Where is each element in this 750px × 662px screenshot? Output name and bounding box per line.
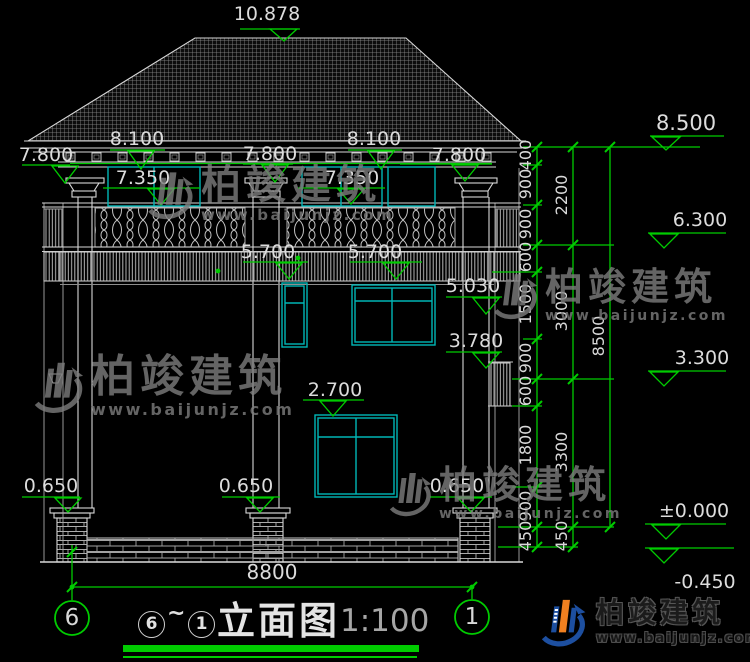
grid-bubble-1: 1	[454, 599, 490, 635]
title-tilde: ~	[167, 603, 185, 625]
roof-hatch	[28, 38, 521, 141]
watermark-logo-icon	[384, 462, 434, 524]
title-scale: 1:100	[340, 606, 429, 637]
level-base-2: 0.650	[212, 477, 280, 496]
dim-overall-width: 8800	[235, 562, 309, 582]
watermark-name: 柏竣建筑	[545, 268, 728, 306]
brand-url: www.baijunjz.com	[596, 632, 750, 645]
level-base-1: 0.650	[17, 477, 85, 496]
mark-neg450: -0.450	[666, 573, 744, 592]
title-name: 立面图	[217, 602, 340, 640]
chain2-2200: 2200	[554, 160, 570, 230]
level-window1f: 2.700	[301, 381, 369, 400]
watermark-top: 柏竣建筑 www.baijunjz.com	[142, 160, 394, 228]
watermark-logo-icon	[28, 350, 86, 422]
level-beam-3: 7.800	[425, 146, 493, 165]
window-2f-top-right	[388, 167, 435, 206]
level-balcony-1: 5.700	[234, 243, 302, 262]
level-beam-1: 7.800	[12, 146, 80, 165]
grid-bubble-6: 6	[54, 600, 90, 636]
mark-6300: 6.300	[661, 211, 739, 230]
level-eave-1: 8.100	[103, 130, 171, 149]
watermark-logo-icon	[488, 263, 540, 327]
window-2f-narrow	[282, 283, 307, 347]
title-underline-thick	[123, 645, 419, 652]
title-to-bubble: 1	[188, 611, 215, 638]
level-ridge: 10.878	[230, 5, 304, 24]
watermark-url: www.baijunjz.com	[201, 208, 394, 223]
cad-elevation-drawing: 10.878 8.100 8.100 7.800 7.800 7.800 7.3…	[0, 0, 750, 662]
level-balcony-2: 5.700	[341, 243, 409, 262]
title-from-bubble: 6	[138, 611, 165, 638]
watermark-name: 柏竣建筑	[91, 355, 294, 399]
watermark-logo-icon	[142, 160, 196, 228]
side-louver-window	[488, 362, 513, 406]
watermark-name: 柏竣建筑	[201, 165, 394, 205]
watermark-bottom: 柏竣建筑 www.baijunjz.com	[384, 462, 622, 524]
window-2f-wide	[352, 285, 435, 345]
stone-plinth	[87, 538, 458, 562]
title-underline-thin	[123, 656, 417, 658]
brand-logo: 柏竣建筑 www.baijunjz.com	[536, 592, 750, 652]
watermark-name: 柏竣建筑	[439, 466, 622, 504]
brand-name: 柏竣建筑	[596, 599, 750, 627]
level-side-sill: 3.780	[442, 332, 510, 351]
level-eave-2: 8.100	[340, 130, 408, 149]
watermark-left: 柏竣建筑 www.baijunjz.com	[28, 350, 294, 422]
mark-8500: 8.500	[647, 113, 725, 134]
watermark-right: 柏竣建筑 www.baijunjz.com	[488, 263, 728, 327]
watermark-url: www.baijunjz.com	[91, 402, 294, 418]
watermark-url: www.baijunjz.com	[439, 507, 622, 521]
mark-zero: ±0.000	[652, 502, 736, 521]
watermark-url: www.baijunjz.com	[545, 309, 728, 323]
brand-logo-icon	[536, 592, 588, 652]
mark-3300: 3.300	[663, 349, 741, 368]
elevation-linework	[0, 0, 750, 662]
